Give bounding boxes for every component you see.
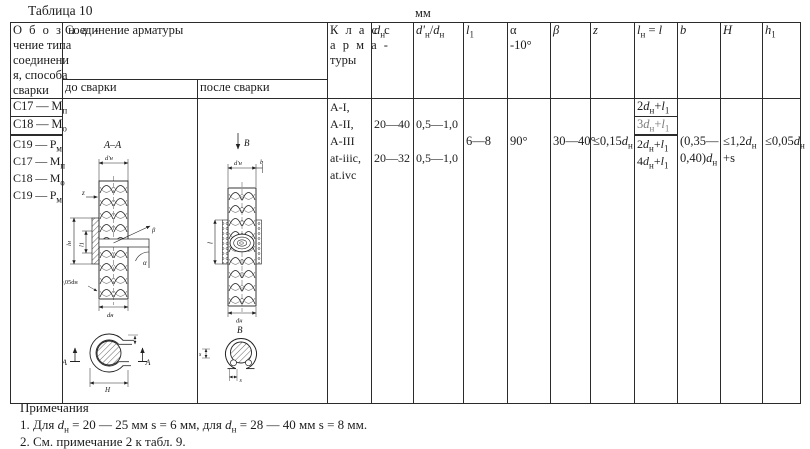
l1-value: 6—8 — [464, 99, 508, 404]
label-beta: β — [151, 227, 156, 234]
dn-ratio-values: 0,5—1,0 0,5—1,0 — [414, 99, 464, 404]
header-H: H — [721, 23, 763, 99]
ln-value-row2: 3dн+l1 — [635, 117, 678, 135]
value-line: 30—40° — [553, 133, 588, 150]
value-line: 3dн+l1 — [637, 117, 675, 132]
label-l-dim: l — [207, 242, 215, 244]
header-line: я, способа — [13, 68, 60, 83]
label-section-mark-right: А — [145, 358, 151, 367]
header-before-welding: до сварки — [63, 79, 198, 98]
header-line: а р м а - — [330, 38, 369, 53]
label-d-top: d'н — [105, 155, 113, 162]
value-line: 90° — [510, 133, 548, 150]
designation-list: С19 — Рм С17 — Мп С18 — Мо С19 — Рм — [11, 135, 63, 404]
header-designation: О б о з н а - чение типа соединени я, сп… — [11, 23, 63, 99]
label-d-top: d'н — [234, 160, 242, 167]
value-line: 4dн+l1 — [637, 153, 675, 170]
value-line: 20—40 — [374, 116, 411, 133]
value-line: 20—32 — [374, 150, 411, 167]
designation-label: С18 — Мо — [13, 117, 60, 132]
designation-c18-row2: С18 — Мо — [11, 117, 63, 135]
label-s-bottom: s — [240, 378, 243, 384]
header-after-welding: после сварки — [198, 79, 328, 98]
spec-table: О б о з н а - чение типа соединени я, сп… — [10, 22, 801, 404]
header-line: l1 — [466, 23, 505, 38]
header-line: до сварки — [65, 80, 195, 95]
label-view-mark: В — [244, 138, 250, 148]
value-line — [416, 99, 461, 116]
header-ln: lн = l — [635, 23, 678, 99]
value-line: 2dн+l1 — [637, 136, 675, 153]
header-line: туры — [330, 53, 369, 68]
technical-drawing-after: В d'н b — [198, 99, 326, 399]
value-line: 2dн+l1 — [637, 99, 675, 114]
header-connection: Соединение арматуры — [63, 23, 328, 80]
label-s-left: s — [199, 352, 202, 358]
notes-heading: Примечания — [20, 400, 367, 416]
ln-value-row3: 2dн+l1 4dн+l1 — [635, 135, 678, 404]
label-h-dim: Н — [104, 386, 111, 394]
h1-value: ≤0,05dн — [763, 99, 801, 404]
label-offset-note: ≤0,05dн — [63, 279, 78, 286]
table-title: Таблица 10 — [28, 3, 93, 19]
label-d-bottom: dн — [236, 318, 242, 325]
value-line — [416, 133, 461, 150]
technical-drawing-before: А–А d'н z β α — [63, 99, 196, 399]
label-section-mark-left: А — [63, 358, 67, 367]
value-line — [374, 133, 411, 150]
header-line: z — [593, 23, 632, 38]
value-line: ≤0,05dн — [765, 133, 798, 150]
value-line — [374, 99, 411, 116]
designation-label: С17 — Мп — [13, 99, 60, 114]
header-line: d'н/dн — [416, 23, 461, 38]
value-line: 0,40)dн — [680, 150, 718, 167]
H-value: ≤1,2dн +s — [721, 99, 763, 404]
designation-label: С18 — Мо — [13, 170, 60, 187]
header-z: z — [591, 23, 635, 99]
unit-label: мм — [415, 6, 431, 21]
header-line: β — [553, 23, 588, 38]
drawing-before-welding: А–А d'н z β α — [63, 99, 198, 404]
header-line: О б о з н а - — [13, 23, 60, 38]
note-1: 1. Для dн = 20 — 25 мм s = 6 мм, для dн … — [20, 417, 367, 433]
header-line: H — [723, 23, 760, 38]
header-b: b — [678, 23, 721, 99]
label-ln-dim: lн — [66, 241, 73, 246]
note-2: 2. См. примечание 2 к табл. 9. — [20, 434, 367, 449]
ln-value-row1: 2dн+l1 — [635, 99, 678, 117]
label-z: z — [81, 189, 85, 197]
header-line: после сварки — [200, 80, 325, 95]
class-values: A-I, A-II, A-III at-iiic, at.ivc — [328, 99, 372, 404]
header-line: h1 — [765, 23, 798, 38]
beta-value: 30—40° — [551, 99, 591, 404]
class-line: A-II, — [330, 116, 369, 133]
header-line: Соединение арматуры — [65, 23, 325, 38]
class-line: A-I, — [330, 99, 369, 116]
header-h1: h1 — [763, 23, 801, 99]
value-line: 0,5—1,0 — [416, 116, 461, 133]
class-line: at.ivc — [330, 167, 369, 184]
label-section-aa: А–А — [103, 140, 122, 151]
header-line: b — [680, 23, 718, 38]
notes-block: Примечания 1. Для dн = 20 — 25 мм s = 6 … — [20, 400, 367, 449]
header-l1: l1 — [464, 23, 508, 99]
value-line: +s — [723, 150, 760, 167]
value-line: 6—8 — [466, 133, 505, 150]
label-view: В — [237, 325, 243, 335]
header-line: чение типа — [13, 38, 60, 53]
drawing-after-welding: В d'н b — [198, 99, 328, 404]
value-line: 0,5—1,0 — [416, 150, 461, 167]
label-alpha: α — [143, 259, 147, 267]
value-line: ≤0,15dн — [593, 133, 632, 150]
designation-label: С19 — Рм — [13, 136, 60, 153]
label-d-bottom: dн — [107, 312, 113, 319]
header-line: dн — [374, 23, 411, 38]
class-line: A-III — [330, 133, 369, 150]
value-line: (0,35— — [680, 133, 718, 150]
header-alpha: α -10° — [508, 23, 551, 99]
header-line: lн = l — [637, 23, 675, 38]
header-dn: dн — [372, 23, 414, 99]
header-line: α — [510, 23, 548, 38]
header-line: К л а с с — [330, 23, 369, 38]
designation-label: С19 — Рм — [13, 187, 60, 204]
label-l1-dim: l1 — [79, 242, 86, 247]
value-line: ≤1,2dн — [723, 133, 760, 150]
document-page: Таблица 10 мм О б о з н а - чение типа с… — [0, 0, 810, 449]
b-value: (0,35— 0,40)dн — [678, 99, 721, 404]
label-b-dim: b — [260, 159, 264, 166]
designation-c17-row1: С17 — Мп — [11, 99, 63, 117]
header-beta: β — [551, 23, 591, 99]
designation-label: С17 — Мп — [13, 153, 60, 170]
header-class: К л а с с а р м а - туры — [328, 23, 372, 99]
dn-values: 20—40 20—32 — [372, 99, 414, 404]
z-value: ≤0,15dн — [591, 99, 635, 404]
header-line: соединени — [13, 53, 60, 68]
header-line: сварки — [13, 83, 60, 98]
alpha-value: 90° — [508, 99, 551, 404]
header-line: -10° — [510, 38, 548, 53]
class-line: at-iiic, — [330, 150, 369, 167]
header-dn-ratio: d'н/dн — [414, 23, 464, 99]
